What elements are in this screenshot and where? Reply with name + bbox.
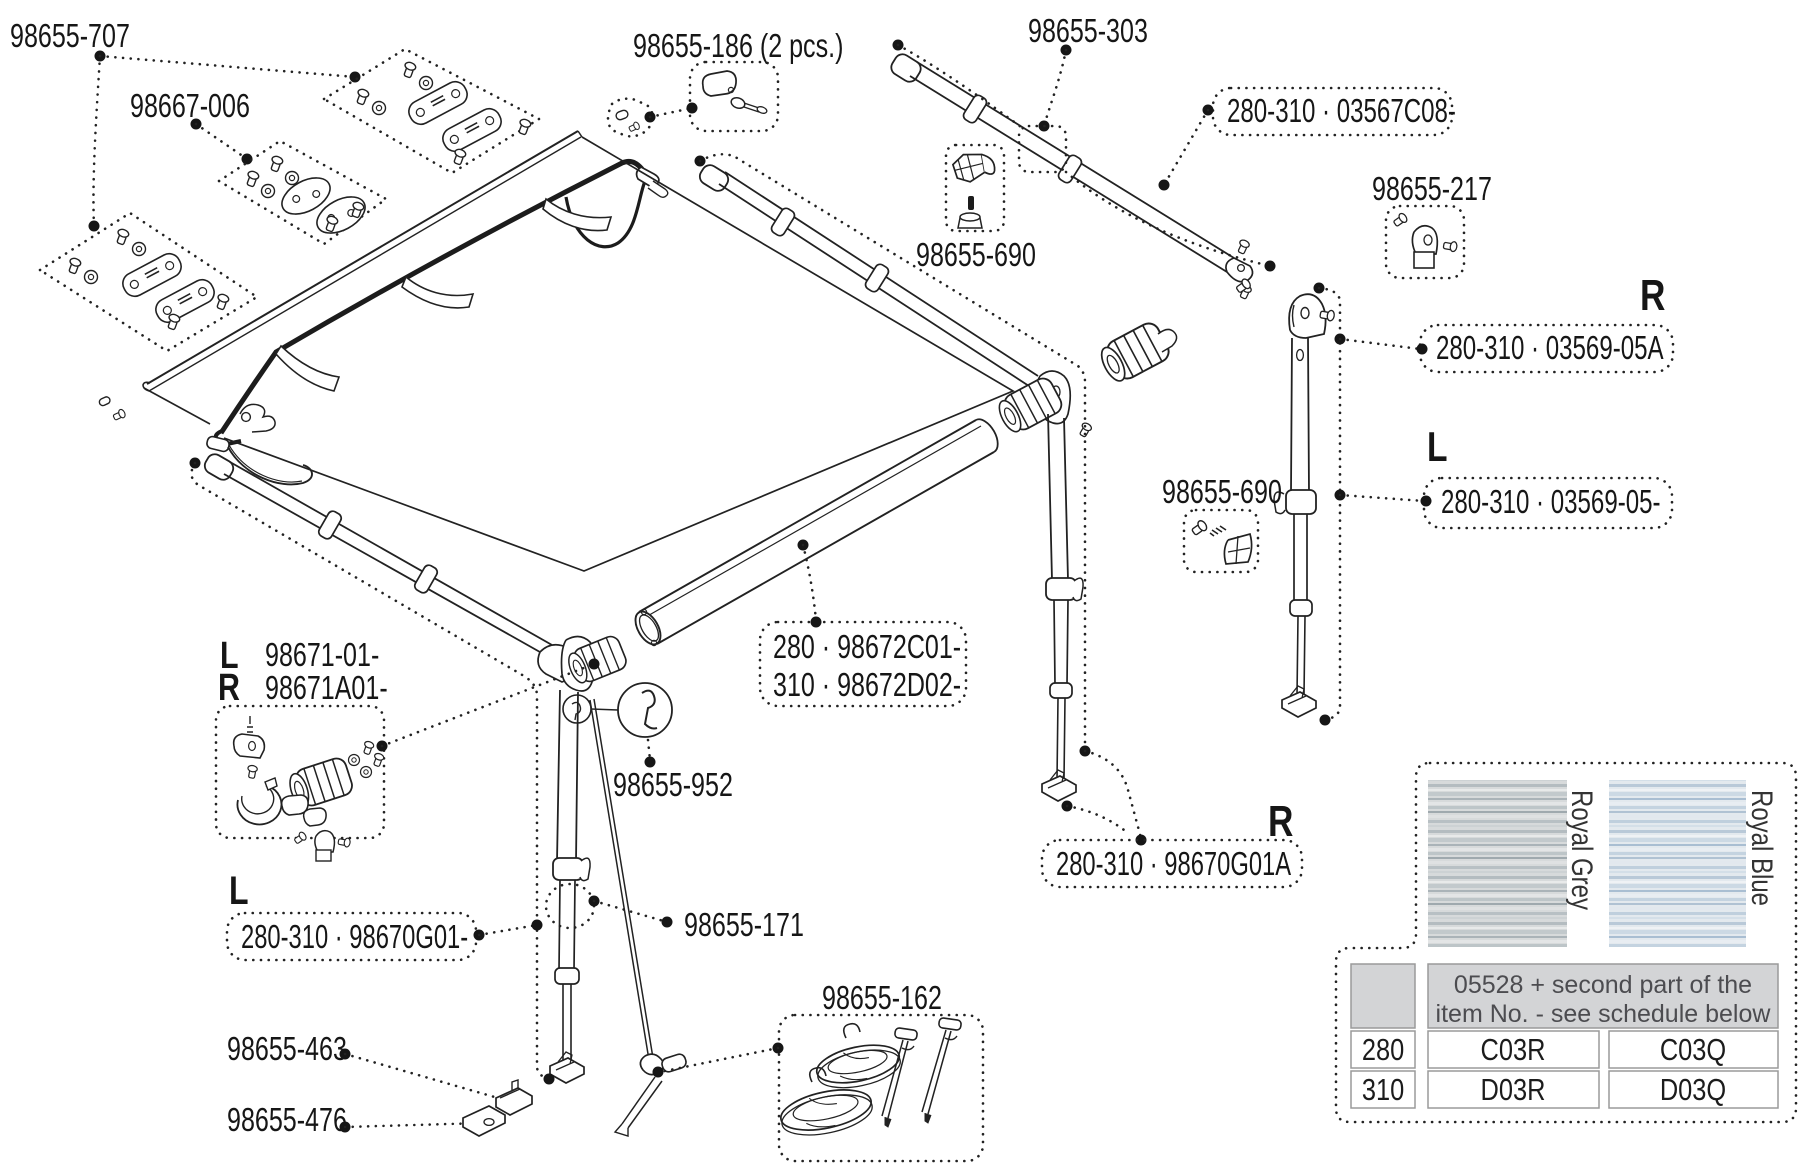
svg-text:C03R: C03R: [1481, 1033, 1546, 1068]
svg-text:L: L: [229, 868, 249, 913]
svg-text:98667-006: 98667-006: [130, 88, 250, 125]
svg-text:98671-01-: 98671-01-: [265, 637, 379, 674]
svg-text:280-310 · 98670G01A: 280-310 · 98670G01A: [1056, 846, 1292, 883]
svg-text:C03Q: C03Q: [1660, 1033, 1726, 1068]
svg-text:98655-707: 98655-707: [10, 18, 130, 55]
svg-text:D03R: D03R: [1481, 1073, 1546, 1108]
svg-text:98655-463: 98655-463: [227, 1031, 347, 1068]
svg-text:280-310 · 03569-05A: 280-310 · 03569-05A: [1436, 330, 1664, 367]
svg-text:280-310 · 03569-05-: 280-310 · 03569-05-: [1441, 484, 1661, 521]
svg-text:280: 280: [1362, 1033, 1404, 1068]
svg-text:98655-162: 98655-162: [822, 980, 942, 1017]
svg-text:280 · 98672C01-: 280 · 98672C01-: [773, 629, 961, 666]
svg-text:05528 + second part of the: 05528 + second part of the: [1454, 971, 1752, 999]
svg-text:item No. - see schedule below: item No. - see schedule below: [1436, 1000, 1772, 1028]
svg-text:98671A01-: 98671A01-: [265, 670, 388, 707]
svg-text:Royal Blue: Royal Blue: [1745, 790, 1779, 906]
svg-text:98655-171: 98655-171: [684, 907, 804, 944]
svg-text:98655-690: 98655-690: [916, 237, 1036, 274]
svg-text:R: R: [1268, 797, 1293, 846]
svg-text:Royal Grey: Royal Grey: [1565, 790, 1599, 910]
svg-text:310: 310: [1362, 1073, 1404, 1108]
svg-text:98655-186 (2 pcs.): 98655-186 (2 pcs.): [633, 28, 843, 65]
svg-text:98655-952: 98655-952: [613, 767, 733, 804]
svg-text:D03Q: D03Q: [1660, 1073, 1726, 1108]
svg-text:280-310 · 03567C08-: 280-310 · 03567C08-: [1227, 93, 1456, 130]
svg-text:R: R: [1640, 271, 1665, 320]
svg-text:L: L: [1427, 425, 1448, 471]
svg-text:98655-217: 98655-217: [1372, 171, 1492, 208]
svg-text:98655-303: 98655-303: [1028, 13, 1148, 50]
svg-text:R: R: [218, 667, 240, 709]
svg-text:98655-690: 98655-690: [1162, 474, 1282, 511]
svg-text:98655-476: 98655-476: [227, 1102, 347, 1139]
svg-text:310 · 98672D02-: 310 · 98672D02-: [773, 667, 961, 704]
svg-text:280-310 · 98670G01-: 280-310 · 98670G01-: [241, 919, 468, 956]
